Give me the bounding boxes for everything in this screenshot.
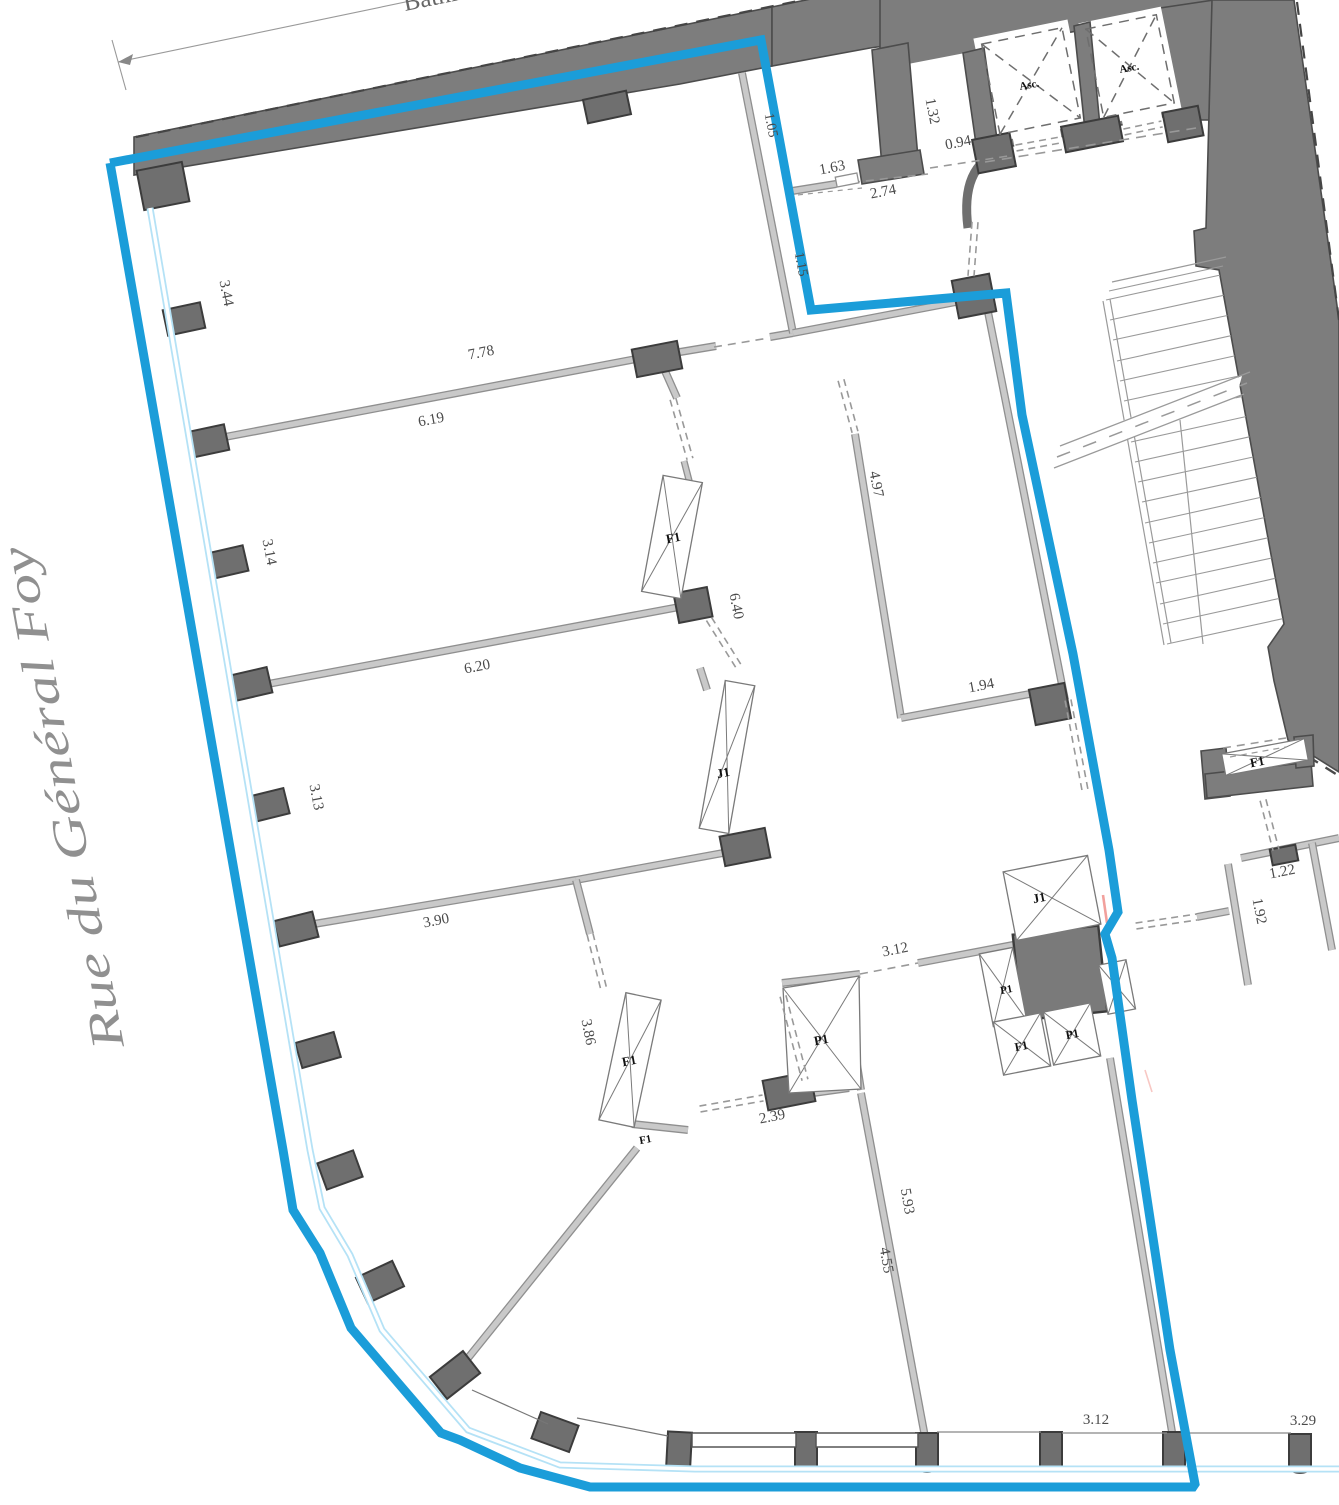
svg-text:3.12: 3.12 (1083, 1412, 1109, 1428)
svg-text:P1: P1 (999, 983, 1013, 997)
svg-text:3.29: 3.29 (1290, 1413, 1316, 1429)
svg-text:F1: F1 (1013, 1038, 1029, 1054)
svg-text:F1: F1 (1249, 753, 1266, 770)
svg-text:F1: F1 (638, 1133, 652, 1147)
svg-text:F1: F1 (665, 529, 682, 546)
svg-text:F1: F1 (621, 1052, 638, 1069)
svg-text:P1: P1 (813, 1031, 830, 1048)
svg-text:P1: P1 (1064, 1026, 1080, 1042)
